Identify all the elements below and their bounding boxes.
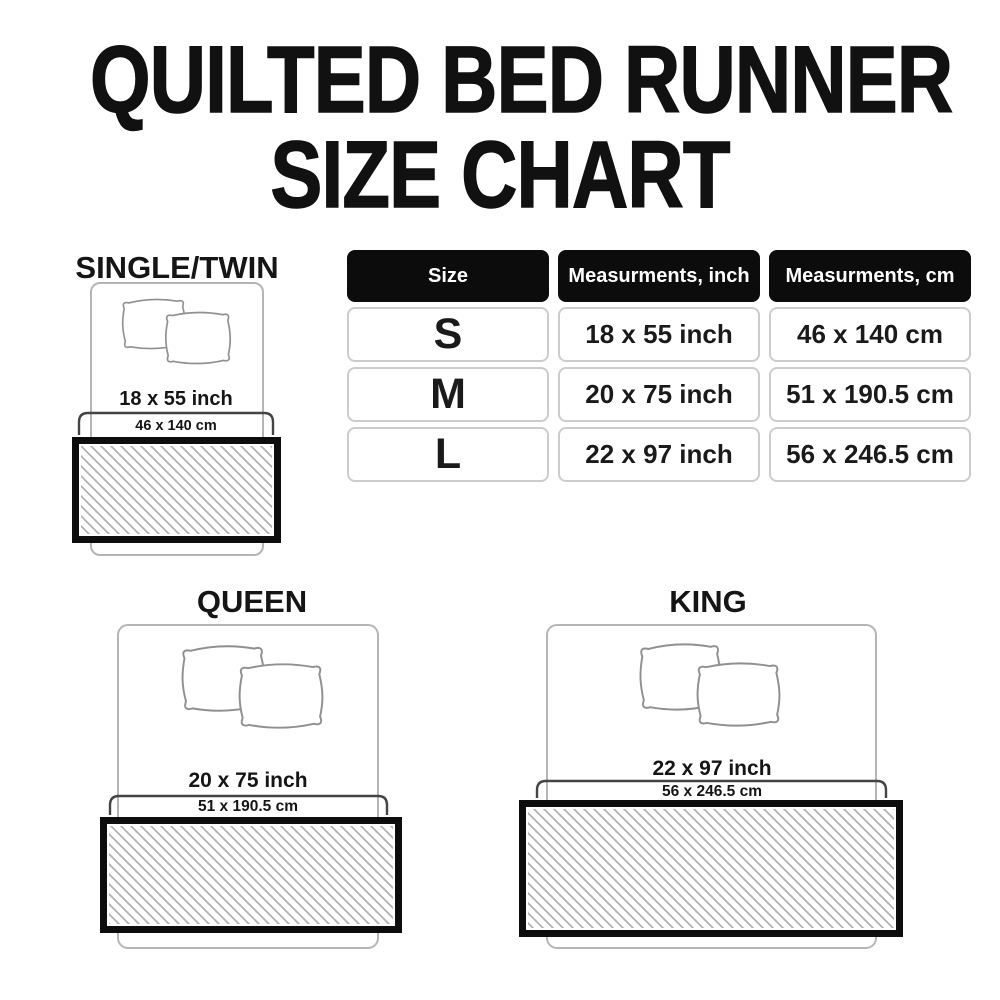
cell-inch-l: 22 x 97 inch <box>558 427 760 482</box>
cell-inch-s: 18 x 55 inch <box>558 307 760 362</box>
page-title-line1: QUILTED BED RUNNER <box>90 33 910 128</box>
cell-size-l: L <box>347 427 549 482</box>
king-diagram: KING 22 x 97 inch 56 x 246.5 cm <box>495 580 925 960</box>
page-title-line2: SIZE CHART <box>90 128 910 223</box>
pillow-right-icon <box>165 312 230 364</box>
pillow-right-icon <box>697 663 780 727</box>
size-table: Size Measurments, inch Measurments, cm S… <box>347 250 971 482</box>
queen-label: QUEEN <box>197 584 307 619</box>
queen-inch-measure: 20 x 75 inch <box>188 769 307 792</box>
king-inch-measure: 22 x 97 inch <box>652 757 771 780</box>
header-size: Size <box>347 250 549 302</box>
header-measurements-cm: Measurments, cm <box>769 250 971 302</box>
bed-runner-hatch <box>528 809 894 928</box>
cell-inch-m: 20 x 75 inch <box>558 367 760 422</box>
header-measurements-inch: Measurments, inch <box>558 250 760 302</box>
size-chart-page: QUILTED BED RUNNER SIZE CHART Size Measu… <box>0 0 1000 1000</box>
cell-cm-l: 56 x 246.5 cm <box>769 427 971 482</box>
queen-cm-measure: 51 x 190.5 cm <box>198 798 298 815</box>
single-twin-inch-measure: 18 x 55 inch <box>119 388 232 410</box>
single-twin-cm-measure: 46 x 140 cm <box>135 418 216 434</box>
king-label: KING <box>669 584 747 619</box>
page-title: QUILTED BED RUNNER SIZE CHART <box>0 33 1000 223</box>
cell-cm-m: 51 x 190.5 cm <box>769 367 971 422</box>
bed-runner-hatch <box>109 826 393 924</box>
cell-size-s: S <box>347 307 549 362</box>
single-twin-label: SINGLE/TWIN <box>75 250 278 285</box>
cell-size-m: M <box>347 367 549 422</box>
queen-diagram: QUEEN 20 x 75 inch 51 x 190.5 cm <box>85 580 420 960</box>
king-cm-measure: 56 x 246.5 cm <box>662 783 762 800</box>
bed-runner-hatch <box>81 446 272 534</box>
pillow-right-icon <box>239 664 323 729</box>
cell-cm-s: 46 x 140 cm <box>769 307 971 362</box>
single-twin-diagram: SINGLE/TWIN 18 x 55 inch 46 x 140 cm <box>55 240 305 570</box>
